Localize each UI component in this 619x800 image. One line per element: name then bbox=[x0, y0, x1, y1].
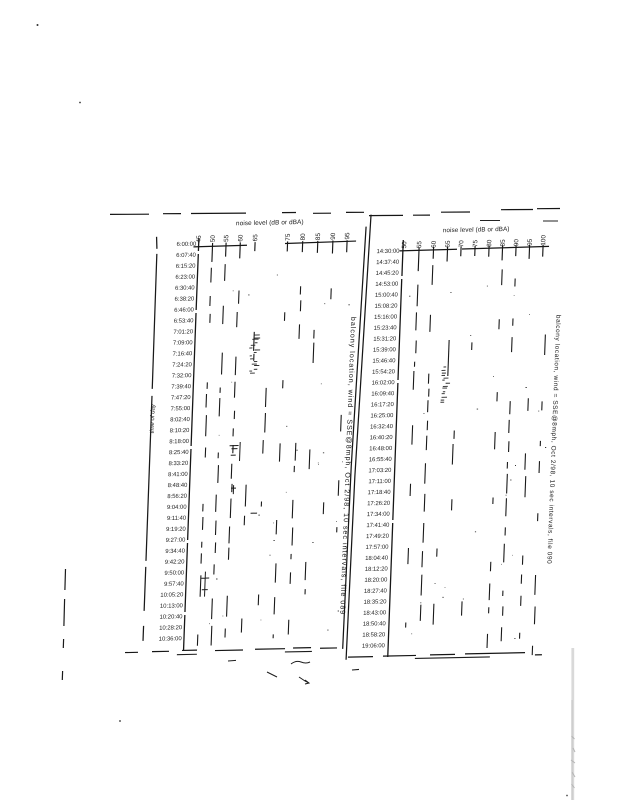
svg-text:18:12:20: 18:12:20 bbox=[365, 566, 389, 572]
svg-text:17:34:00: 17:34:00 bbox=[367, 512, 391, 518]
svg-text:6:53:40: 6:53:40 bbox=[174, 318, 195, 324]
svg-text:15:46:40: 15:46:40 bbox=[372, 358, 396, 364]
svg-text:55: 55 bbox=[416, 241, 423, 249]
svg-text:6:15:20: 6:15:20 bbox=[176, 264, 197, 270]
svg-text:15:23:40: 15:23:40 bbox=[374, 325, 398, 331]
svg-text:10:05:20: 10:05:20 bbox=[160, 592, 184, 598]
svg-text:19:06:00: 19:06:00 bbox=[362, 643, 386, 649]
svg-text:17:18:40: 17:18:40 bbox=[367, 490, 391, 496]
svg-text:9:11:40: 9:11:40 bbox=[167, 516, 187, 522]
svg-text:8:56:20: 8:56:20 bbox=[167, 494, 188, 500]
svg-text:45: 45 bbox=[196, 235, 203, 243]
svg-text:50: 50 bbox=[210, 235, 217, 243]
svg-text:15:39:00: 15:39:00 bbox=[373, 347, 397, 353]
svg-text:8:02:40: 8:02:40 bbox=[170, 417, 191, 423]
svg-text:18:35:20: 18:35:20 bbox=[363, 599, 387, 605]
svg-text:75: 75 bbox=[285, 233, 292, 241]
svg-text:18:20:00: 18:20:00 bbox=[364, 577, 388, 583]
svg-text:6:46:00: 6:46:00 bbox=[174, 307, 195, 313]
svg-text:noise level (dB or dBA): noise level (dB or dBA) bbox=[443, 226, 510, 234]
svg-text:17:11:00: 17:11:00 bbox=[368, 479, 391, 485]
svg-text:9:34:40: 9:34:40 bbox=[165, 549, 186, 555]
svg-text:10:20:40: 10:20:40 bbox=[159, 614, 183, 620]
svg-text:16:40:20: 16:40:20 bbox=[370, 435, 394, 441]
svg-text:18:04:40: 18:04:40 bbox=[365, 556, 389, 562]
svg-text:55: 55 bbox=[223, 234, 230, 242]
svg-text:90: 90 bbox=[330, 232, 337, 240]
svg-text:15:08:20: 15:08:20 bbox=[374, 303, 398, 309]
svg-text:16:48:00: 16:48:00 bbox=[369, 446, 393, 452]
svg-text:7:01:20: 7:01:20 bbox=[173, 329, 194, 335]
svg-text:9:50:00: 9:50:00 bbox=[164, 570, 185, 576]
svg-text:7:16:40: 7:16:40 bbox=[172, 351, 193, 357]
svg-text:60: 60 bbox=[237, 234, 244, 242]
svg-text:14:30:00: 14:30:00 bbox=[376, 249, 400, 255]
svg-text:85: 85 bbox=[315, 232, 322, 240]
svg-text:10:28:20: 10:28:20 bbox=[159, 625, 183, 631]
svg-text:65: 65 bbox=[445, 240, 452, 248]
svg-text:7:09:00: 7:09:00 bbox=[173, 340, 194, 346]
svg-text:7:47:20: 7:47:20 bbox=[171, 395, 192, 401]
svg-text:8:41:00: 8:41:00 bbox=[168, 472, 189, 478]
svg-text:9:57:40: 9:57:40 bbox=[164, 581, 185, 587]
svg-text:8:18:00: 8:18:00 bbox=[169, 439, 190, 445]
svg-text:60: 60 bbox=[431, 240, 438, 248]
svg-text:noise level (dB or dBA): noise level (dB or dBA) bbox=[236, 219, 304, 227]
svg-text:14:53:00: 14:53:00 bbox=[375, 282, 399, 288]
svg-text:50: 50 bbox=[401, 241, 408, 249]
svg-text:80: 80 bbox=[300, 233, 307, 241]
svg-text:7:55:00: 7:55:00 bbox=[170, 406, 191, 412]
svg-text:15:00:40: 15:00:40 bbox=[375, 292, 399, 298]
svg-text:95: 95 bbox=[527, 238, 534, 246]
svg-text:16:09:40: 16:09:40 bbox=[371, 391, 395, 397]
svg-text:15:54:20: 15:54:20 bbox=[372, 369, 396, 375]
svg-text:6:30:40: 6:30:40 bbox=[175, 285, 196, 291]
svg-text:17:03:20: 17:03:20 bbox=[368, 468, 392, 474]
svg-text:17:41:40: 17:41:40 bbox=[366, 523, 390, 529]
svg-text:7:32:00: 7:32:00 bbox=[172, 373, 193, 379]
svg-text:9:04:00: 9:04:00 bbox=[167, 505, 188, 511]
svg-text:9:19:20: 9:19:20 bbox=[166, 527, 187, 533]
svg-text:75: 75 bbox=[472, 239, 479, 247]
svg-text:100: 100 bbox=[540, 235, 547, 246]
svg-text:14:45:20: 14:45:20 bbox=[376, 271, 400, 277]
svg-text:16:25:00: 16:25:00 bbox=[370, 413, 394, 419]
svg-text:9:27:00: 9:27:00 bbox=[166, 538, 187, 544]
svg-text:7:39:40: 7:39:40 bbox=[171, 384, 192, 390]
svg-text:8:48:40: 8:48:40 bbox=[168, 483, 189, 489]
svg-text:10:13:00: 10:13:00 bbox=[160, 603, 184, 609]
svg-text:16:55:40: 16:55:40 bbox=[369, 457, 393, 463]
svg-text:7:24:20: 7:24:20 bbox=[172, 362, 193, 368]
svg-text:65: 65 bbox=[252, 234, 259, 242]
svg-text:95: 95 bbox=[344, 232, 351, 240]
svg-text:16:02:00: 16:02:00 bbox=[372, 380, 396, 386]
svg-text:16:17:20: 16:17:20 bbox=[371, 402, 395, 408]
svg-text:6:07:40: 6:07:40 bbox=[176, 253, 197, 259]
svg-text:15:31:20: 15:31:20 bbox=[373, 336, 397, 342]
svg-text:time of day: time of day bbox=[150, 403, 157, 433]
svg-text:10:36:00: 10:36:00 bbox=[159, 636, 183, 642]
svg-text:18:43:00: 18:43:00 bbox=[363, 610, 387, 616]
svg-text:17:57:00: 17:57:00 bbox=[365, 545, 389, 551]
svg-text:17:26:20: 17:26:20 bbox=[367, 501, 391, 507]
svg-text:18:58:20: 18:58:20 bbox=[362, 632, 386, 638]
svg-text:17:49:20: 17:49:20 bbox=[366, 534, 390, 540]
svg-text:8:10:20: 8:10:20 bbox=[170, 428, 191, 434]
svg-text:14:37:40: 14:37:40 bbox=[376, 260, 400, 266]
svg-text:9:42:20: 9:42:20 bbox=[165, 559, 186, 565]
svg-text:8:33:20: 8:33:20 bbox=[168, 461, 189, 467]
svg-text:18:27:40: 18:27:40 bbox=[364, 588, 388, 594]
svg-text:15:16:00: 15:16:00 bbox=[374, 314, 398, 320]
svg-text:18:50:40: 18:50:40 bbox=[363, 621, 387, 627]
svg-text:90: 90 bbox=[513, 239, 520, 247]
svg-text:6:23:00: 6:23:00 bbox=[175, 275, 196, 281]
svg-text:6:38:20: 6:38:20 bbox=[174, 296, 195, 302]
svg-text:8:25:40: 8:25:40 bbox=[169, 450, 190, 456]
svg-text:85: 85 bbox=[500, 239, 507, 247]
svg-text:16:32:40: 16:32:40 bbox=[370, 424, 394, 430]
svg-text:80: 80 bbox=[486, 239, 493, 247]
svg-text:70: 70 bbox=[458, 240, 465, 248]
